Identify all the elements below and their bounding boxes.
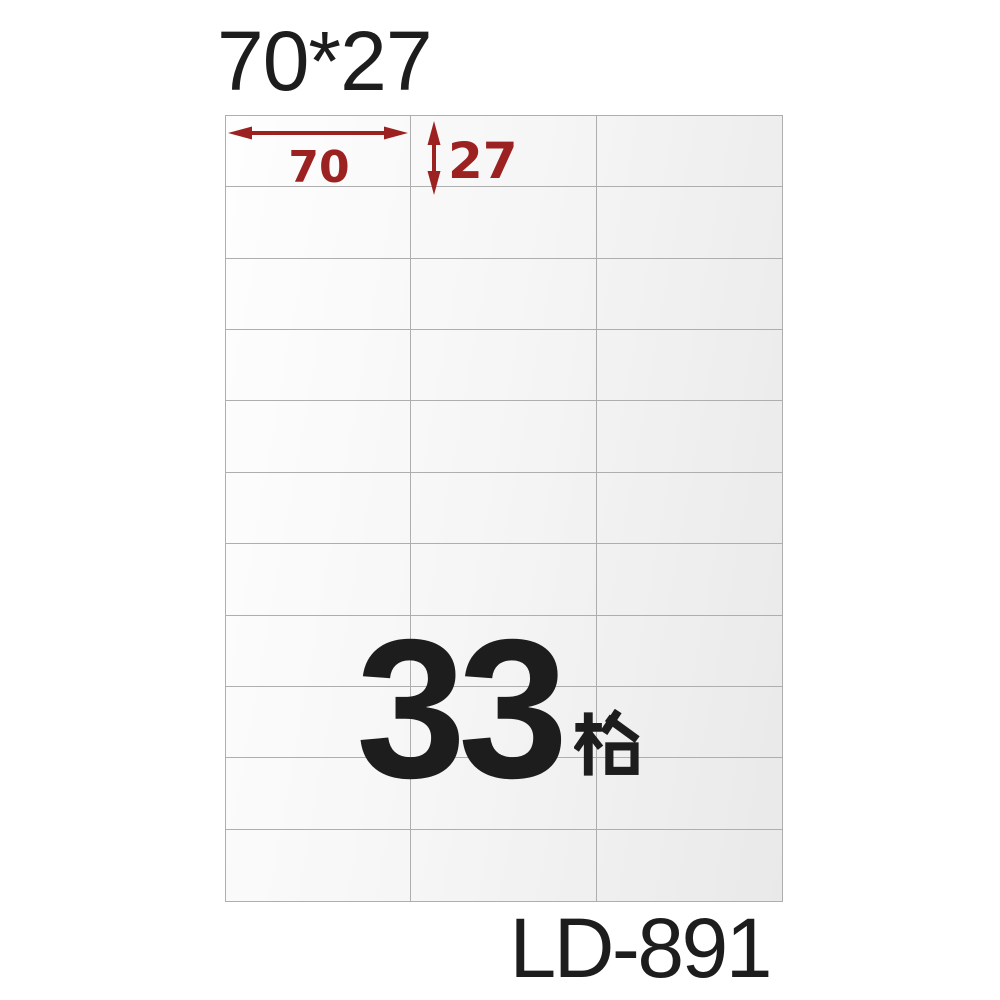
model-number: LD-891 [509, 906, 770, 990]
label-cell [226, 259, 411, 330]
label-cell [597, 473, 782, 544]
label-cell [597, 330, 782, 401]
label-cell [226, 830, 411, 901]
cell-count: 33 [356, 610, 642, 808]
label-cell [226, 330, 411, 401]
label-cell [597, 401, 782, 472]
label-cell [597, 830, 782, 901]
ge-character-glyph [574, 709, 642, 777]
width-dimension-arrow-icon [228, 125, 408, 141]
height-dimension-label: 27 [448, 136, 518, 186]
width-dimension-label: 70 [226, 146, 412, 190]
label-cell [411, 187, 596, 258]
label-cell [411, 473, 596, 544]
label-cell [411, 330, 596, 401]
cell-count-number: 33 [356, 610, 560, 808]
height-dimension-arrow-icon [426, 121, 442, 195]
label-cell [597, 187, 782, 258]
label-sheet: 70 27 33 [225, 115, 783, 902]
label-cell [411, 401, 596, 472]
size-title: 70*27 [217, 19, 432, 103]
label-cell [597, 259, 782, 330]
label-cell [226, 187, 411, 258]
label-cell [597, 544, 782, 615]
label-cell [411, 259, 596, 330]
label-cell [597, 116, 782, 187]
label-sheet-product-image: 70*27 70 27 33 [0, 0, 1000, 1000]
label-cell [411, 830, 596, 901]
label-cell [226, 473, 411, 544]
label-cell [226, 401, 411, 472]
